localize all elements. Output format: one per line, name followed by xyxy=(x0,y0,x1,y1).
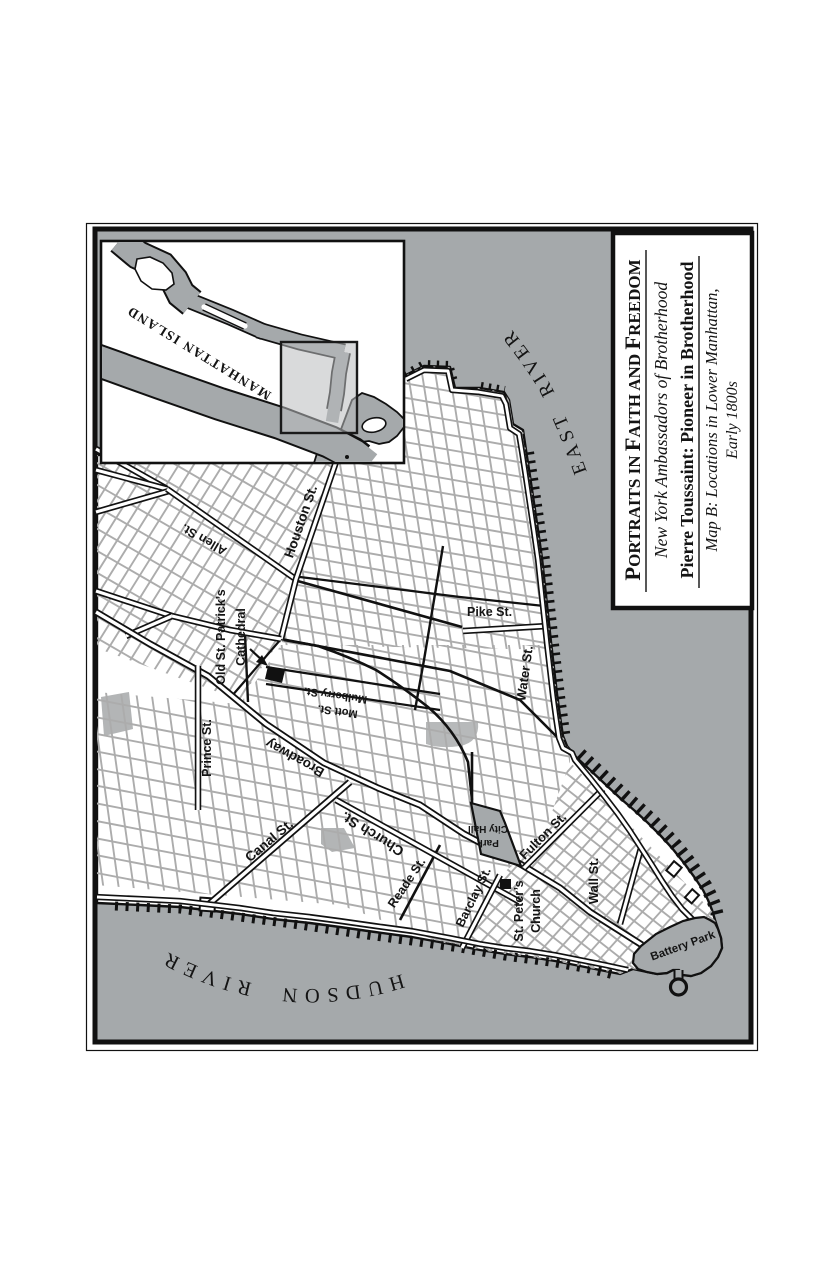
svg-text:Pierre Toussaint: Pioneer in B: Pierre Toussaint: Pioneer in Brotherhood xyxy=(677,261,697,578)
svg-text:Church: Church xyxy=(529,889,543,933)
svg-text:Pike St.: Pike St. xyxy=(467,605,512,619)
svg-text:Early 1800s: Early 1800s xyxy=(724,381,741,460)
svg-text:St. Peter’s: St. Peter’s xyxy=(512,880,526,941)
svg-text:Old St. Patrick’s: Old St. Patrick’s xyxy=(214,589,228,684)
svg-text:New York Ambassadors of Brothe: New York Ambassadors of Brotherhood xyxy=(651,282,671,559)
svg-text:Wall St.: Wall St. xyxy=(586,858,601,904)
svg-text:City Hall: City Hall xyxy=(468,823,508,834)
svg-text:Park: Park xyxy=(477,837,499,848)
svg-text:Cathedral: Cathedral xyxy=(234,608,248,666)
svg-text:Map B: Locations in Lower Manh: Map B: Locations in Lower Manhattan, xyxy=(702,288,721,552)
svg-text:Prince St.: Prince St. xyxy=(200,719,214,777)
